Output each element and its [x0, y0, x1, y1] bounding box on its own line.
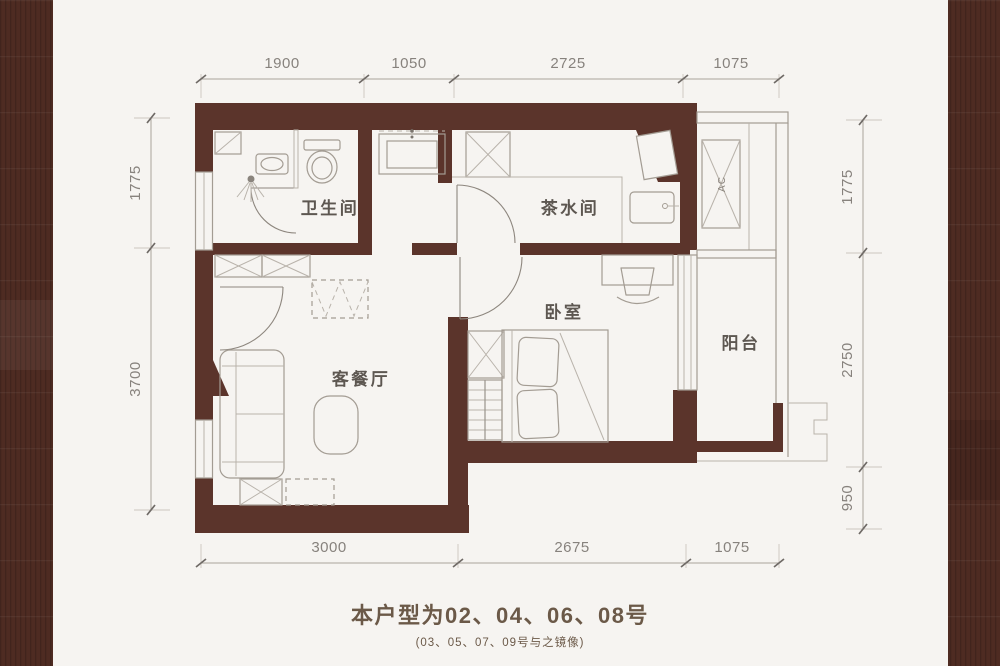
wall-balcony-right-stub [773, 403, 783, 452]
faucet-dot [411, 136, 414, 139]
wall-bottom-bedroom [448, 441, 697, 463]
entry-counter-basin [387, 141, 437, 168]
living-window [195, 420, 213, 478]
dim-right: 1775 2750 950 [839, 115, 882, 534]
door-pantry [457, 185, 515, 243]
tilted-casement-window [636, 130, 677, 179]
chair [617, 268, 659, 304]
dim-right-2: 2750 [839, 342, 856, 377]
room-label-bathroom: 卫生间 [301, 198, 360, 218]
ac-platform: AC [697, 112, 827, 461]
dim-top-4: 1075 [713, 55, 748, 72]
bedroom-balcony-window [678, 255, 697, 390]
wall-bath-entry [358, 130, 372, 243]
corner-cabinet-diagonal [215, 132, 241, 154]
appliance-cabinet [466, 132, 510, 177]
dashed-wardrobe [312, 280, 368, 318]
tv-cabinet [240, 479, 334, 505]
wardrobe [468, 331, 504, 378]
room-label-bedroom: 卧室 [545, 302, 584, 322]
wall-living-pier [213, 360, 229, 396]
door-living-bath [220, 287, 283, 350]
opening-entry-living [372, 242, 412, 256]
wall-balcony-bottom [697, 441, 783, 452]
dim-right-3: 950 [839, 485, 856, 512]
dim-top-3: 2725 [550, 55, 585, 72]
footer-unit-numbers: 本户型为02、04、06、08号 [351, 603, 649, 628]
pillow [517, 337, 559, 387]
right-band [948, 0, 1000, 666]
wall-bottom-living [195, 505, 469, 533]
left-band-sheen [0, 300, 53, 370]
pillow [517, 389, 559, 439]
floor-plan-image: AC [0, 0, 1000, 666]
dim-bottom-2: 2675 [554, 539, 589, 556]
shower-head-icon [237, 176, 264, 203]
bath-partition [294, 130, 298, 188]
bathroom-sink [256, 154, 288, 174]
door-bedroom [460, 257, 522, 319]
bed [502, 330, 608, 442]
entry-fixtures [379, 129, 445, 174]
opening-pantry-bedroom [457, 242, 520, 256]
dim-bottom-3: 1075 [714, 539, 749, 556]
frame-bands [0, 0, 1000, 666]
dim-left-2: 3700 [127, 361, 144, 396]
room-label-living: 客餐厅 [331, 369, 391, 389]
dim-right-1: 1775 [839, 169, 856, 204]
dim-left-1: 1775 [127, 165, 144, 200]
bathroom-fixtures [215, 130, 340, 202]
footer: 本户型为02、04、06、08号 (03、05、07、09号与之镜像) [351, 603, 649, 649]
room-label-pantry: 茶水间 [541, 198, 600, 218]
dim-bottom: 3000 2675 1075 [196, 539, 784, 568]
sofa [220, 350, 284, 478]
hatch-cabinet [215, 255, 310, 277]
exterior-ledge [697, 403, 827, 461]
faucet-dot [410, 129, 414, 133]
wall-bath-living [213, 243, 372, 255]
ac-label: AC [717, 176, 728, 192]
ac-unit: AC [702, 140, 740, 228]
dim-top: 1900 1050 2725 1075 [196, 55, 784, 98]
bed-throw [560, 333, 604, 440]
dim-left: 1775 3700 [127, 113, 170, 515]
bathroom-window [195, 172, 213, 250]
parapet-top [697, 112, 788, 123]
walls [195, 103, 783, 533]
pantry-sink [630, 192, 679, 223]
floor-plan-svg: AC [0, 0, 1000, 666]
wall-balcony-pier [673, 390, 697, 442]
dim-top-1: 1900 [264, 55, 299, 72]
footer-mirror-note: (03、05、07、09号与之镜像) [416, 635, 585, 649]
drawer-chest [468, 380, 502, 440]
door-bathroom [251, 188, 296, 233]
bedroom-fixtures [468, 255, 673, 442]
coffee-table [314, 396, 358, 454]
dim-top-2: 1050 [391, 55, 426, 72]
wall-top [195, 103, 697, 130]
wall-living-bedroom [448, 317, 468, 533]
toilet [304, 140, 340, 183]
desk [602, 255, 673, 285]
wall-pantry-bedroom [412, 243, 690, 255]
right-band-shade [948, 420, 1000, 500]
room-label-balcony: 阳台 [722, 333, 761, 353]
balcony-top-rail [697, 250, 776, 258]
dim-bottom-1: 3000 [311, 539, 346, 556]
